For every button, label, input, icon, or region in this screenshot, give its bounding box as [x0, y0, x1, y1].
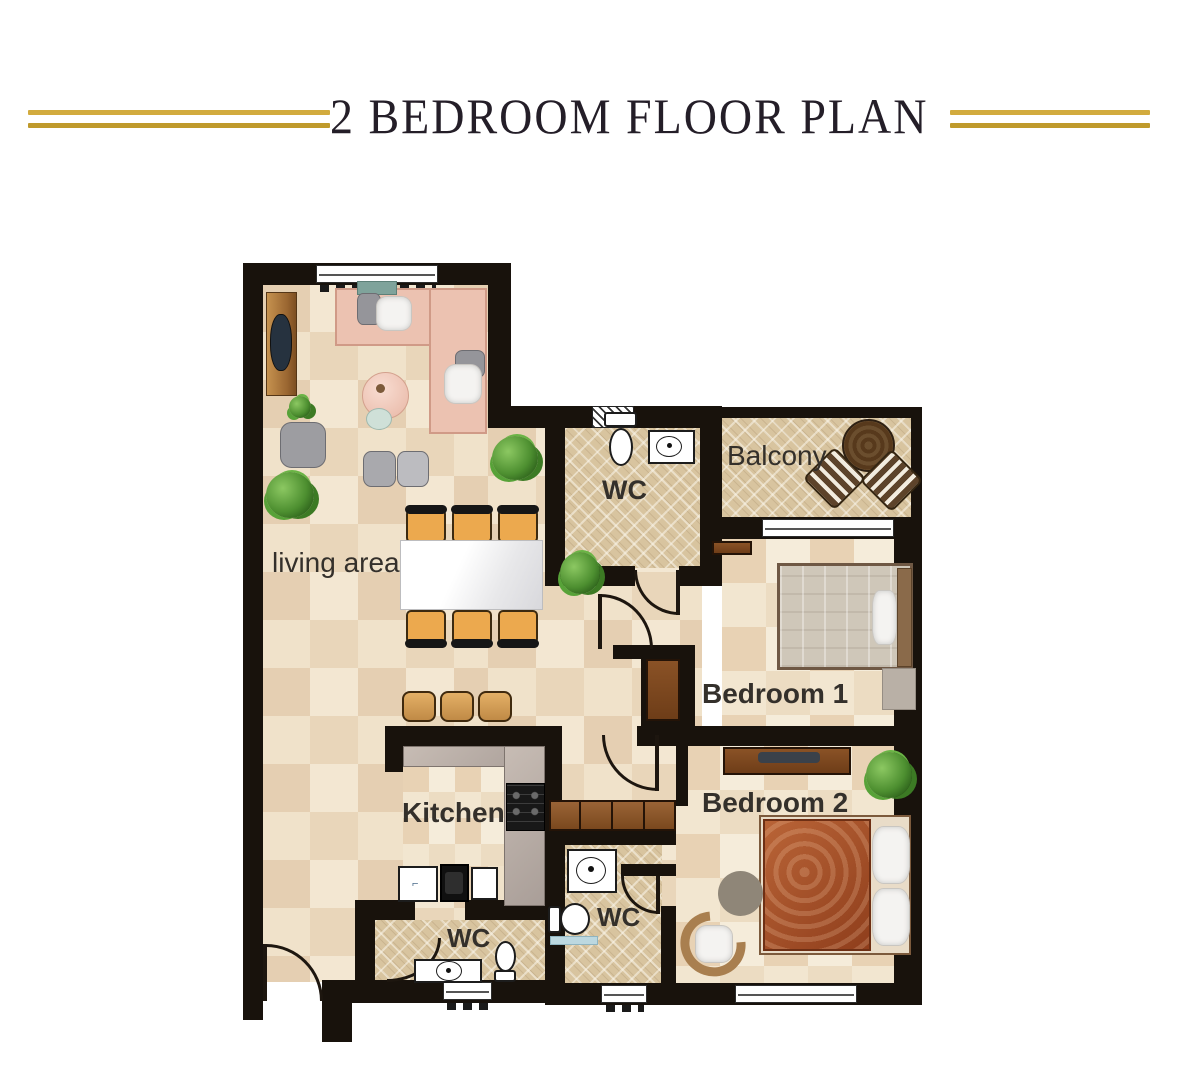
dining-table	[400, 540, 543, 610]
dining-chair	[452, 610, 492, 644]
ottoman-2	[397, 451, 429, 487]
label-wc-left: WC	[447, 923, 490, 954]
wc-left-window	[443, 982, 492, 1000]
gold-rule-right-top	[950, 110, 1150, 115]
stove-icon	[506, 783, 545, 831]
bedroom2-rug	[718, 871, 763, 916]
wc-right-window	[601, 985, 647, 1003]
wall-kitchen-left-stub	[385, 726, 403, 772]
plant-dining-icon	[492, 436, 538, 480]
wall-wc-right-right	[661, 906, 676, 984]
rattan-chair-cushion	[695, 925, 733, 963]
label-wc-top: WC	[602, 475, 647, 506]
toilet-bowl-icon	[609, 428, 633, 466]
bedroom1-headboard	[897, 568, 912, 667]
wall-left	[243, 263, 263, 1020]
wc-right-shelf	[550, 936, 598, 945]
gold-rule-right	[950, 108, 1150, 134]
wc-top-door-leaf	[676, 570, 680, 615]
wall-wc-top-bottom-b	[679, 566, 722, 586]
wc-right-door-leaf	[656, 876, 660, 914]
dining-chair	[498, 509, 538, 543]
bedroom2-door-leaf	[655, 735, 659, 791]
bar-stool	[402, 691, 436, 722]
wc-right-window-sill	[606, 1005, 644, 1012]
sink-drain-icon	[667, 443, 672, 448]
plant-bedroom2-icon	[866, 752, 912, 798]
page-title: 2 BEDROOM FLOOR PLAN	[330, 88, 920, 145]
wall-bottom-left	[322, 980, 562, 1003]
kitchen-cabinet-2	[471, 867, 498, 900]
kitchen-cabinet-mark: ⌐	[412, 878, 420, 890]
dining-chair	[498, 610, 538, 644]
entry-door-leaf	[263, 944, 267, 1001]
bedroom1-entry-wardrobe	[646, 659, 680, 721]
wall-wc-balcony-divider	[700, 406, 722, 586]
bedroom2-duvet	[763, 819, 871, 951]
label-balcony: Balcony	[727, 440, 827, 472]
small-plant-icon	[289, 396, 311, 418]
armchair	[280, 422, 326, 468]
bedroom2-tv-icon	[758, 752, 820, 763]
bedroom2-pillow	[872, 826, 910, 884]
bedroom1-pillow	[872, 590, 897, 645]
plant-hallway-icon	[560, 552, 600, 594]
sofa-pillow-white	[376, 296, 412, 331]
ottoman-1	[363, 451, 396, 487]
gold-rule-left-top	[28, 110, 330, 115]
wc-right-drain-icon	[588, 866, 594, 872]
dining-chair	[406, 610, 446, 644]
bedroom2-window	[735, 985, 857, 1003]
wall-wc-right-top	[565, 830, 676, 845]
bedroom2-pillow	[872, 888, 910, 946]
wc-right-toilet-bowl-icon	[560, 903, 590, 935]
wall-living-right-upper	[488, 263, 511, 413]
wall-wc-right-stub	[621, 864, 676, 876]
balcony-rail-top	[722, 407, 922, 418]
wc-left-window-sill	[447, 1003, 489, 1010]
wall-kitchen-top	[385, 726, 545, 746]
label-wc-right: WC	[597, 902, 640, 933]
gold-rule-right-bottom	[950, 123, 1150, 128]
gold-rule-left-bottom	[28, 123, 330, 128]
wc-left-drain-icon	[446, 968, 451, 973]
plant-living-icon	[266, 472, 314, 518]
wall-bedroom2-left	[676, 746, 688, 806]
wall-bedroom1-left	[683, 645, 695, 746]
label-bedroom-2: Bedroom 2	[702, 787, 848, 819]
balcony-rail-right	[911, 407, 922, 520]
bedroom1-bedside-table	[712, 541, 752, 555]
bedroom1-balcony-door-window	[762, 519, 894, 537]
bar-stool	[440, 691, 474, 722]
chaise-pillow-white	[444, 364, 482, 404]
floor-plan-page: 2 BEDROOM FLOOR PLAN	[0, 0, 1186, 1086]
bar-stool	[478, 691, 512, 722]
wall-wc-top-left	[545, 406, 565, 586]
coffee-table-decor	[376, 384, 385, 393]
floor-vase	[366, 408, 392, 430]
label-living-area: living area	[272, 547, 400, 579]
label-kitchen: Kitchen	[402, 797, 505, 829]
wall-wc-left-left	[355, 900, 375, 983]
hallway-door-leaf	[598, 594, 602, 649]
label-bedroom-1: Bedroom 1	[702, 678, 848, 710]
bedroom1-rug	[882, 668, 916, 710]
wall-entry-step	[322, 1000, 352, 1042]
kitchen-sink-basin	[445, 872, 463, 894]
hallway-closet-dividers	[549, 800, 676, 831]
wc-left-toilet-bowl-icon	[495, 941, 516, 972]
dining-chair	[406, 509, 446, 543]
toilet-tank-icon	[604, 412, 637, 427]
dining-chair	[452, 509, 492, 543]
tv-icon	[270, 314, 292, 371]
gold-rule-left	[28, 108, 330, 134]
wall-bedroom-divider	[637, 726, 922, 746]
